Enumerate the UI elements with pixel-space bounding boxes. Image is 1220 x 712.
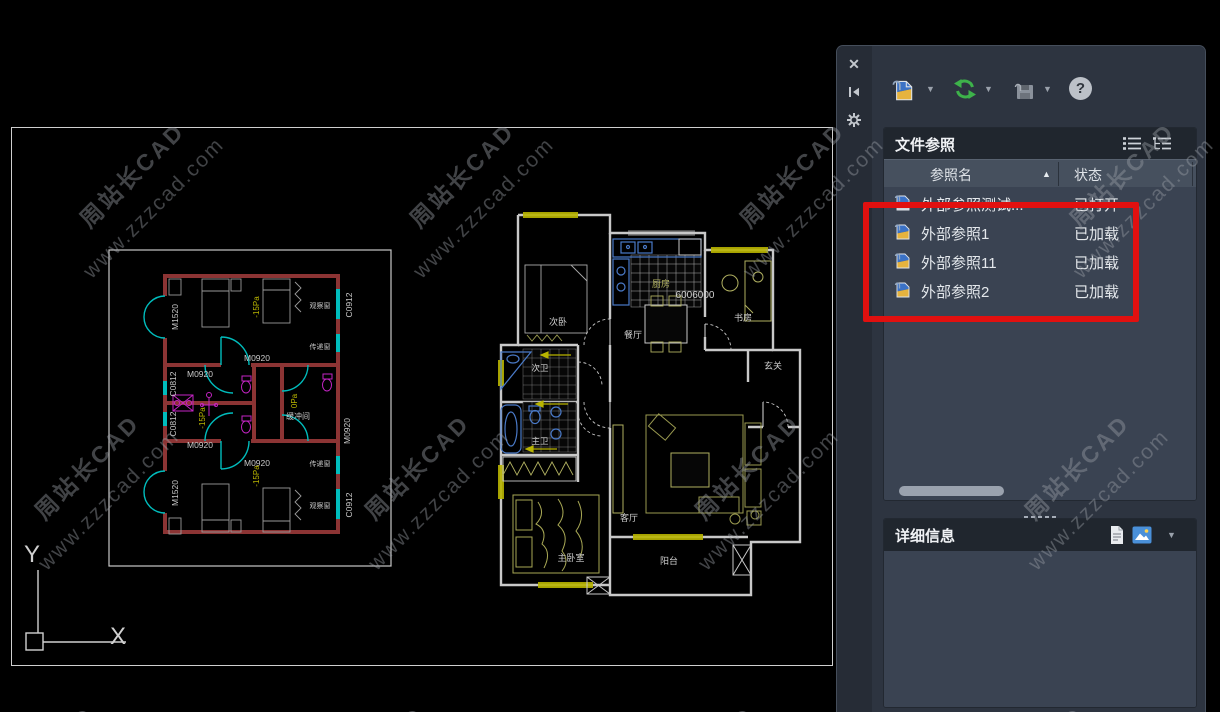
study-furniture	[722, 261, 771, 321]
column-separator[interactable]	[1192, 162, 1193, 186]
svg-text:-15Pa: -15Pa	[252, 296, 261, 318]
auto-hide-button[interactable]	[844, 84, 864, 104]
svg-text:M1520: M1520	[170, 480, 180, 506]
xref-size: 89	[1196, 281, 1197, 298]
details-preview-icon[interactable]	[1132, 526, 1152, 549]
attach-dwg-button[interactable]	[888, 75, 916, 108]
svg-text:-15Pa: -15Pa	[198, 407, 207, 429]
svg-text:M0920: M0920	[244, 353, 270, 363]
file-reference-header: 文件参照	[884, 128, 1196, 159]
attach-dwg-icon	[888, 75, 916, 103]
svg-text:观察窗: 观察窗	[310, 301, 331, 310]
svg-text:M0920: M0920	[187, 369, 213, 379]
screen: M1520 C0912 观察窗 传递窗 M0920 M0920 C0812 C0…	[0, 0, 1220, 712]
svg-text:玄关: 玄关	[764, 360, 782, 371]
svg-text:M0920: M0920	[342, 418, 352, 444]
svg-text:C0812: C0812	[168, 371, 178, 396]
svg-text:6006000: 6006000	[676, 290, 715, 301]
svg-text:客厅: 客厅	[620, 512, 638, 523]
path-dropdown-arrow[interactable]: ▼	[1043, 84, 1052, 94]
file-reference-title: 文件参照	[895, 134, 955, 155]
svg-text:C0812: C0812	[168, 411, 178, 436]
details-body	[884, 551, 1196, 708]
svg-text:主卫: 主卫	[531, 436, 549, 446]
svg-text:传递窗: 传递窗	[310, 342, 331, 351]
svg-text:次卧: 次卧	[549, 316, 567, 327]
svg-text:M1520: M1520	[170, 304, 180, 330]
xref-size: 37	[1196, 194, 1197, 211]
svg-text:次卫: 次卫	[531, 363, 549, 373]
xref-palette: ✕	[836, 45, 1206, 712]
living-furniture	[613, 414, 761, 525]
xref-size: 35	[1196, 252, 1197, 269]
list-view-icon[interactable]	[1122, 136, 1142, 156]
details-text-icon[interactable]	[1109, 525, 1125, 550]
help-button[interactable]: ?	[1069, 77, 1092, 100]
svg-text:厨房: 厨房	[652, 278, 670, 289]
column-separator[interactable]	[1058, 162, 1059, 186]
svg-text:主卧室: 主卧室	[557, 552, 584, 563]
palette-titlebar: ✕	[837, 46, 872, 712]
svg-text:书房: 书房	[734, 312, 752, 323]
details-title: 详细信息	[895, 525, 955, 546]
sort-asc-icon[interactable]: ▲	[1042, 169, 1051, 179]
svg-text:M0920: M0920	[187, 440, 213, 450]
table-header: 参照名 ▲ 状态 大	[884, 159, 1196, 187]
splitter-handle[interactable]	[1024, 507, 1064, 513]
refresh-button[interactable]	[952, 77, 978, 106]
svg-text:餐厅: 餐厅	[624, 329, 642, 340]
svg-text:观察窗: 观察窗	[310, 501, 331, 510]
properties-button[interactable]	[844, 112, 864, 132]
details-dropdown-arrow[interactable]: ▼	[1167, 530, 1176, 540]
details-section: 详细信息	[883, 518, 1197, 708]
column-status[interactable]: 状态	[1074, 165, 1102, 185]
save-path-icon	[1011, 78, 1037, 102]
ucs-x-label: X	[110, 623, 126, 650]
refresh-icon	[952, 77, 978, 101]
svg-text:阳台: 阳台	[660, 555, 678, 566]
close-button[interactable]: ✕	[844, 54, 864, 74]
tree-view-icon[interactable]	[1152, 136, 1172, 156]
svg-text:0Pa: 0Pa	[290, 393, 299, 408]
gear-icon	[846, 112, 862, 128]
refresh-dropdown-arrow[interactable]: ▼	[984, 84, 993, 94]
svg-text:缓冲间: 缓冲间	[286, 411, 310, 421]
svg-text:C0912: C0912	[344, 492, 354, 517]
bedroom2-furniture	[525, 265, 587, 341]
auto-hide-icon	[847, 85, 861, 99]
ucs-y-label: Y	[24, 541, 40, 568]
svg-text:传递窗: 传递窗	[310, 459, 331, 468]
details-header: 详细信息	[884, 519, 1196, 551]
column-name[interactable]: 参照名	[930, 165, 972, 185]
change-path-button[interactable]	[1011, 78, 1037, 107]
highlight-rectangle	[863, 202, 1139, 322]
horizontal-scrollbar[interactable]	[899, 486, 1004, 496]
left-floorplan: M1520 C0912 观察窗 传递窗 M0920 M0920 C0812 C0…	[105, 246, 395, 571]
ucs-icon: Y X	[18, 538, 178, 663]
column-symbols	[587, 545, 751, 594]
xref-size: 59	[1196, 223, 1197, 240]
palette-body: ▼ ▼ ▼ ?	[872, 46, 1206, 712]
attach-dropdown-arrow[interactable]: ▼	[926, 84, 935, 94]
wardrobe	[503, 457, 576, 481]
master-bed	[513, 495, 599, 573]
svg-text:C0912: C0912	[344, 292, 354, 317]
right-floorplan: 次卧 厨房 书房 餐厅 次卫 主卫 玄关 客厅 主卧室 阳台 6006000	[483, 197, 808, 612]
svg-text:-15Pa: -15Pa	[252, 465, 261, 487]
